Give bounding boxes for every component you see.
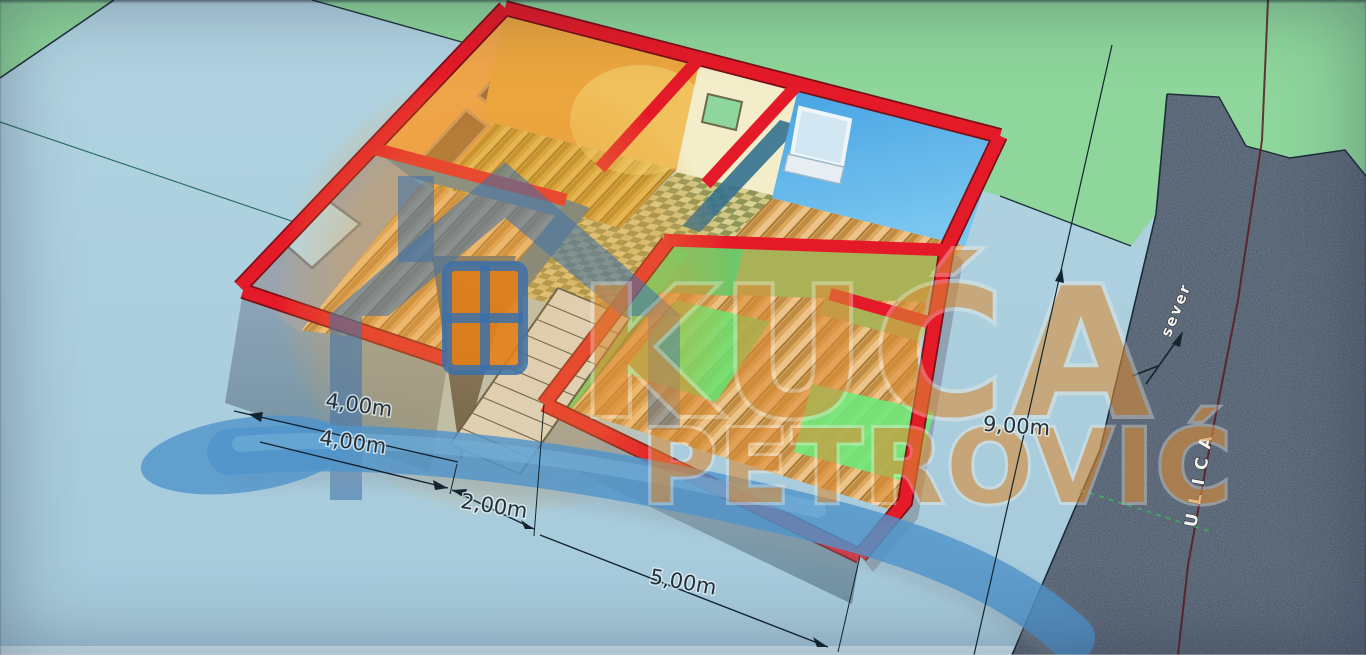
logo-window-icon [447,266,523,370]
floorplan-3d-viewport[interactable]: sever ULICA [0,0,1366,655]
logo-chimney [398,176,434,262]
dim-label-right-depth: 9,00m [982,412,1051,441]
scene-canvas: sever ULICA [0,0,1366,655]
watermark-subtitle: PETROVIĆ [642,407,1234,527]
